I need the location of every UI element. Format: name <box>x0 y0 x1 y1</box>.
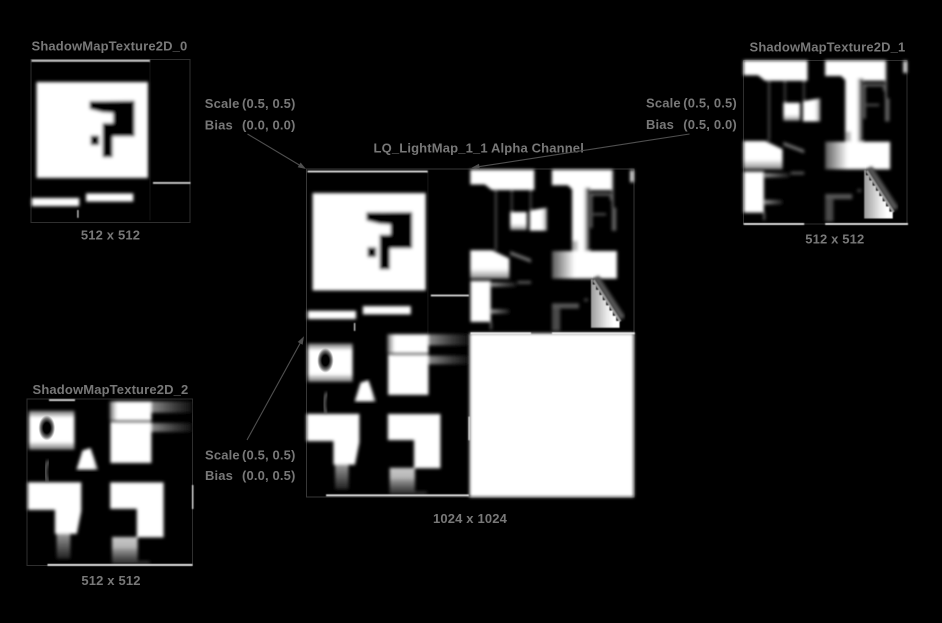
svg-text:Scale: Scale <box>205 96 240 111</box>
svg-text:LQ_LightMap_1_1 Alpha Channel: LQ_LightMap_1_1 Alpha Channel <box>374 141 584 156</box>
svg-text:Bias: Bias <box>205 118 233 133</box>
svg-text:(0.5, 0.0): (0.5, 0.0) <box>683 117 737 132</box>
svg-text:Scale: Scale <box>646 96 681 111</box>
svg-text:(0.0, 0.5): (0.0, 0.5) <box>242 468 296 483</box>
svg-text:1024 x 1024: 1024 x 1024 <box>433 511 508 526</box>
svg-text:(0.5, 0.5): (0.5, 0.5) <box>683 96 737 111</box>
svg-text:ShadowMapTexture2D_2: ShadowMapTexture2D_2 <box>33 382 189 397</box>
svg-text:512 x 512: 512 x 512 <box>81 228 140 243</box>
svg-text:(0.5, 0.5): (0.5, 0.5) <box>242 448 296 463</box>
svg-text:Bias: Bias <box>205 468 233 483</box>
svg-text:Bias: Bias <box>646 117 674 132</box>
svg-text:512 x 512: 512 x 512 <box>805 232 864 247</box>
svg-text:ShadowMapTexture2D_1: ShadowMapTexture2D_1 <box>750 40 906 55</box>
svg-text:(0.0, 0.0): (0.0, 0.0) <box>242 118 296 133</box>
svg-text:Scale: Scale <box>205 448 240 463</box>
svg-text:ShadowMapTexture2D_0: ShadowMapTexture2D_0 <box>32 39 188 54</box>
svg-text:512 x 512: 512 x 512 <box>81 573 140 588</box>
svg-text:(0.5, 0.5): (0.5, 0.5) <box>242 96 296 111</box>
